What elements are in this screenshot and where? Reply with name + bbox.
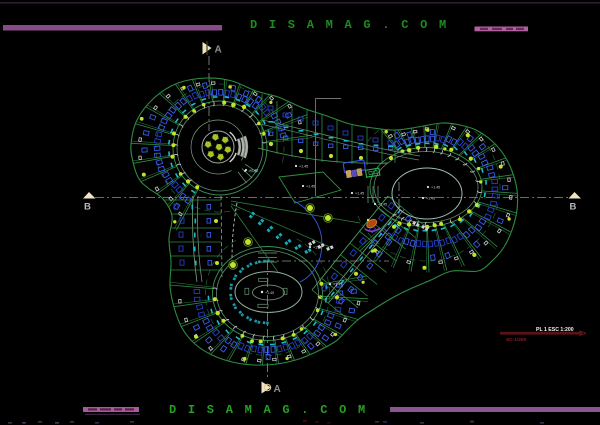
svg-text:+1.45: +1.45	[299, 165, 308, 169]
svg-text:A: A	[215, 45, 222, 56]
svg-text:+1.45: +1.45	[426, 197, 435, 201]
svg-text:+1.45: +1.45	[313, 246, 322, 250]
svg-text:+1.45: +1.45	[431, 186, 440, 190]
svg-text:B: B	[84, 202, 91, 213]
svg-text:DISAMAG.COM: DISAMAG.COM	[169, 403, 377, 417]
svg-text:A: A	[274, 384, 281, 395]
svg-text:+1.45: +1.45	[306, 185, 315, 189]
svg-text:SC-1/200: SC-1/200	[506, 337, 527, 343]
svg-text:+1.45: +1.45	[378, 203, 387, 207]
svg-text:+1.45: +1.45	[249, 169, 258, 173]
svg-text:DISAMAG.COM: DISAMAG.COM	[250, 18, 458, 32]
svg-text:+1.45: +1.45	[265, 291, 274, 295]
svg-text:+1.45: +1.45	[333, 283, 342, 287]
svg-text:+1.45: +1.45	[355, 192, 364, 196]
svg-text:B: B	[570, 202, 577, 213]
